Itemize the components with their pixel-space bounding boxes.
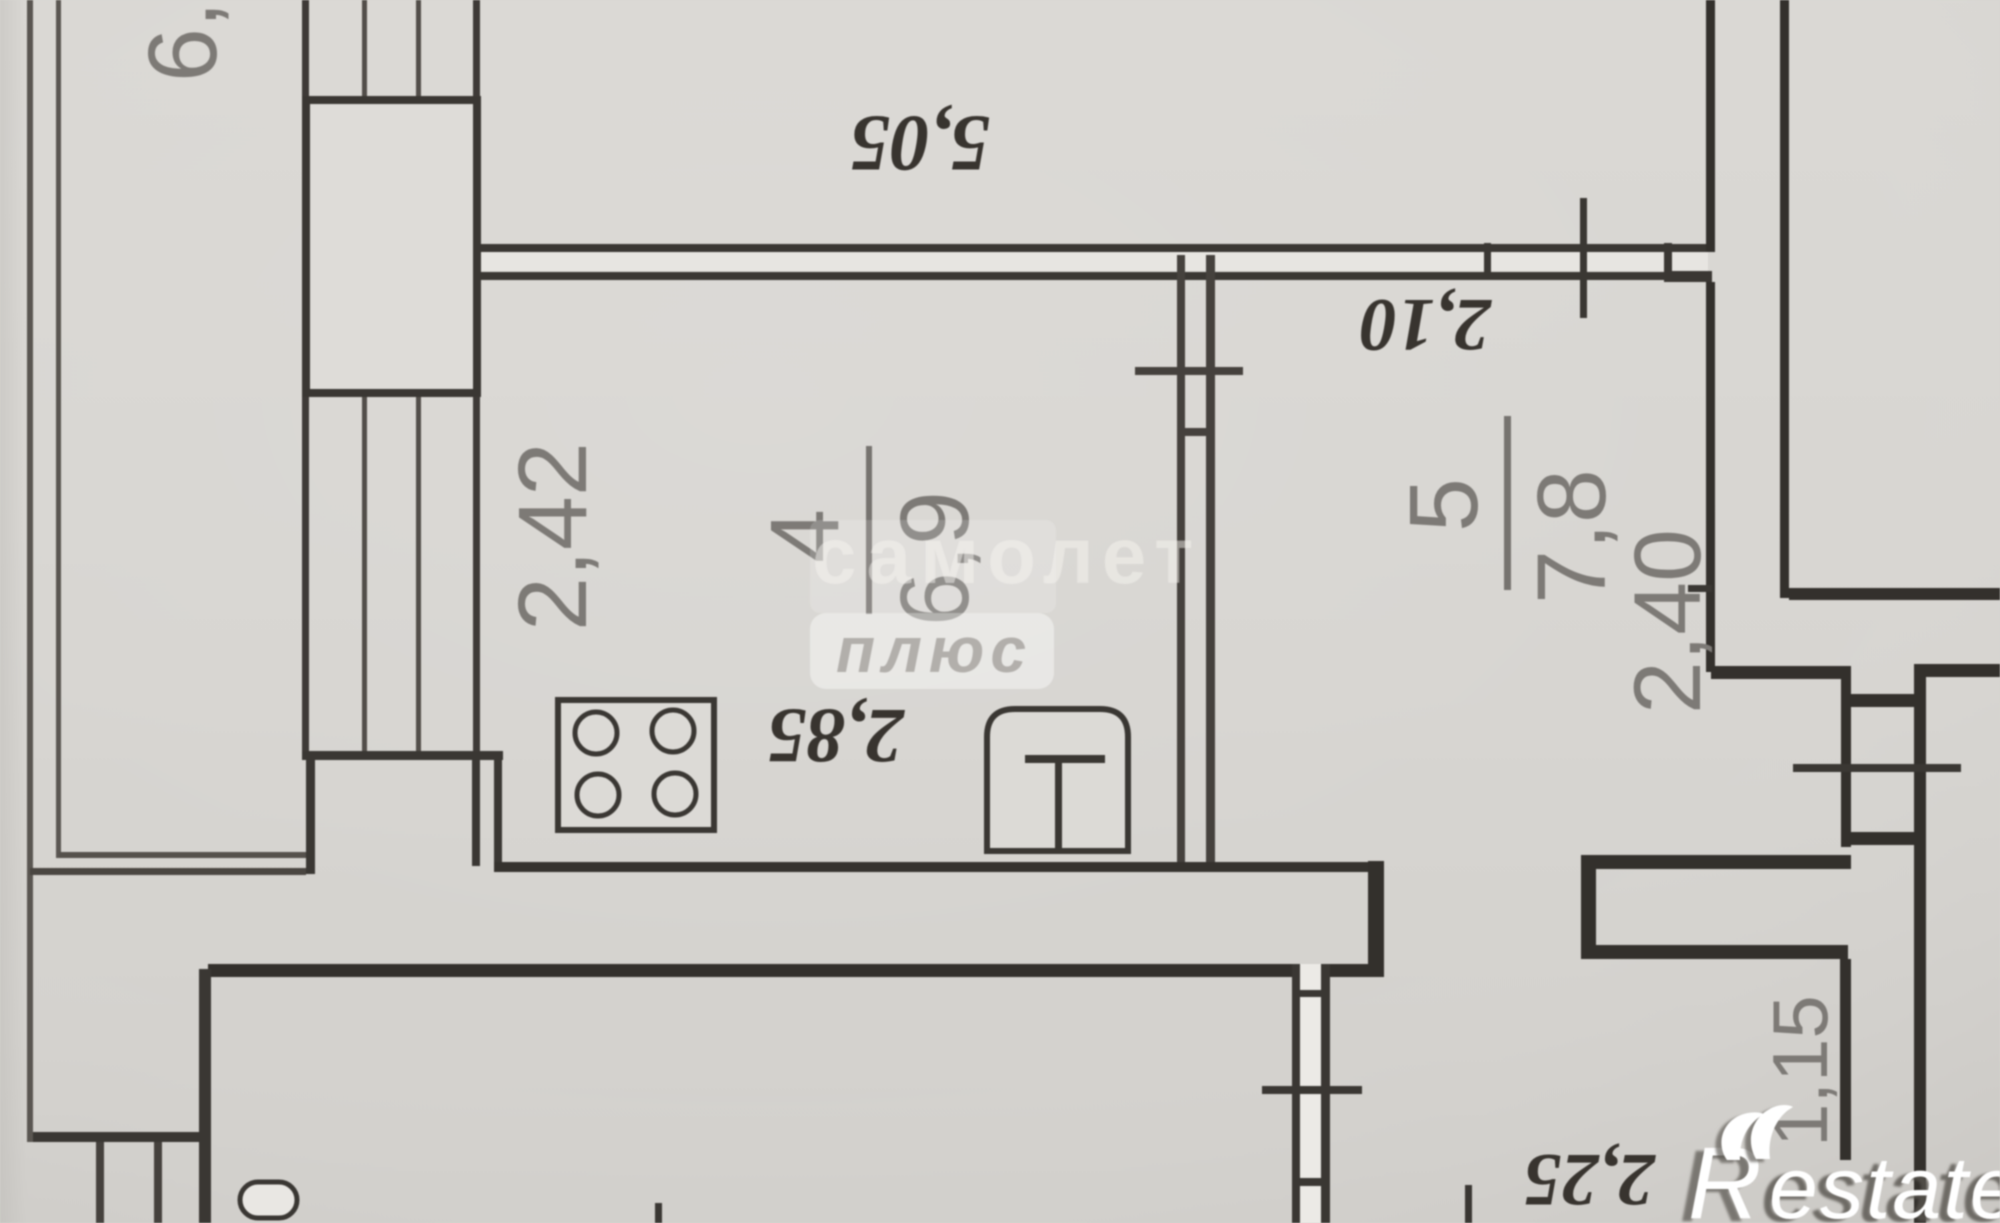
svg-text:самолет: самолет <box>812 511 1202 600</box>
svg-text:2,25: 2,25 <box>1524 1138 1656 1221</box>
svg-text:7,8: 7,8 <box>1517 469 1626 604</box>
svg-text:2,85: 2,85 <box>768 693 906 780</box>
svg-text:2,10: 2,10 <box>1360 283 1492 366</box>
svg-text:estate: estate <box>1769 1138 2000 1223</box>
svg-text:5: 5 <box>1389 478 1498 532</box>
svg-text:5,05: 5,05 <box>850 99 990 187</box>
svg-text:2,40: 2,40 <box>1615 529 1721 714</box>
svg-text:2,42: 2,42 <box>498 442 607 631</box>
svg-text:плюс: плюс <box>836 614 1033 686</box>
svg-text:6,: 6, <box>128 1 237 82</box>
